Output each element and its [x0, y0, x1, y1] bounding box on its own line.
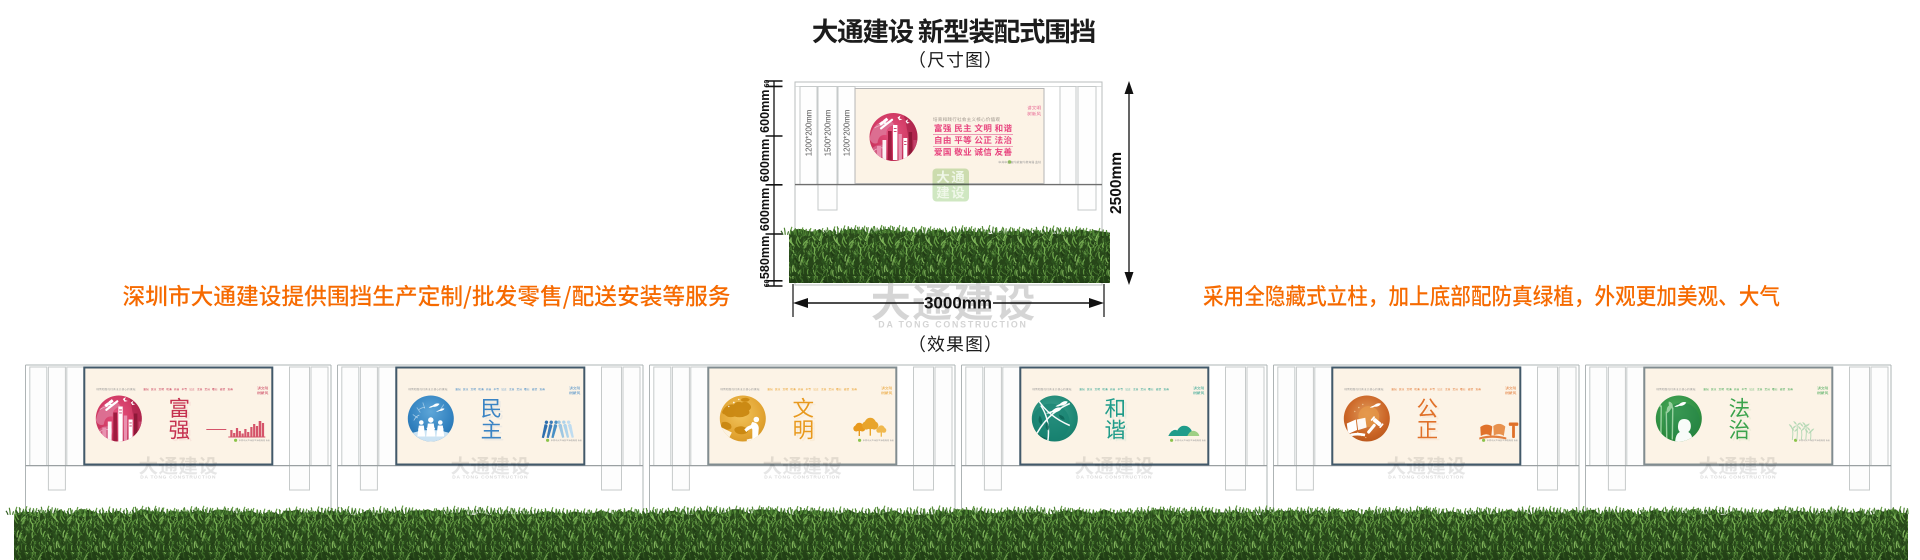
svg-text:1200*200mm: 1200*200mm: [804, 110, 813, 156]
svg-text:1500*200mm: 1500*200mm: [823, 110, 832, 156]
svg-text:3000mm: 3000mm: [924, 294, 992, 313]
svg-text:600mm: 600mm: [758, 188, 772, 231]
svg-text:60: 60: [764, 279, 771, 287]
svg-text:600mm: 600mm: [758, 139, 772, 182]
svg-text:600mm: 600mm: [758, 89, 772, 132]
svg-text:2500mm: 2500mm: [1108, 152, 1125, 214]
svg-text:580mm: 580mm: [758, 236, 772, 279]
svg-text:1200*200mm: 1200*200mm: [842, 110, 851, 156]
svg-text:DA TONG CONSTRUCTION: DA TONG CONSTRUCTION: [878, 320, 1027, 330]
svg-text:60: 60: [764, 80, 771, 88]
